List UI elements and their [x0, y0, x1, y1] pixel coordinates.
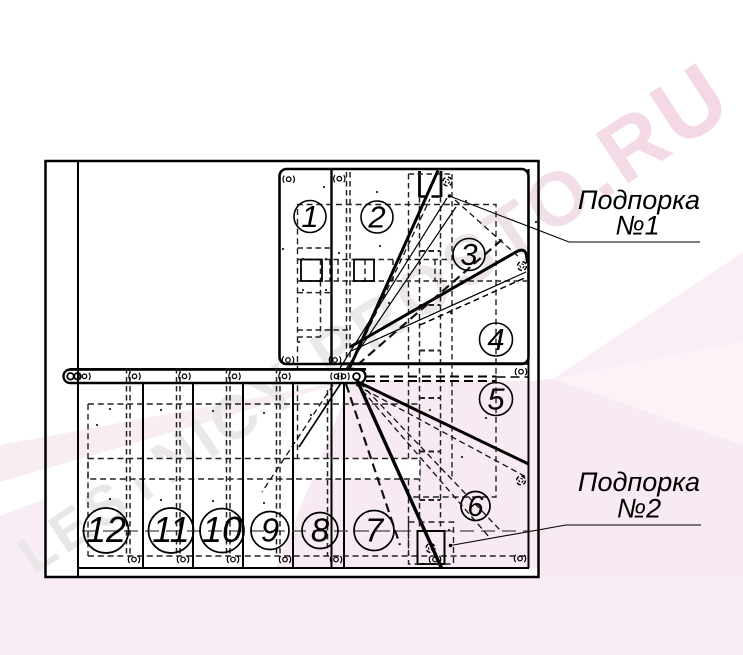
svg-text:10: 10: [202, 509, 242, 550]
svg-text:Подпорка: Подпорка: [578, 467, 700, 497]
svg-text:3: 3: [460, 237, 477, 272]
svg-text:2: 2: [367, 200, 385, 235]
svg-text:9: 9: [261, 512, 279, 549]
svg-text:7: 7: [365, 512, 385, 549]
svg-text:4: 4: [487, 322, 504, 357]
svg-text:1: 1: [301, 199, 318, 234]
svg-text:8: 8: [311, 512, 330, 549]
svg-text:5: 5: [487, 382, 505, 417]
svg-text:6: 6: [467, 491, 484, 523]
svg-text:№1: №1: [615, 211, 659, 241]
svg-text:№2: №2: [617, 494, 661, 524]
svg-text:12: 12: [86, 509, 126, 550]
svg-text:11: 11: [152, 509, 189, 550]
